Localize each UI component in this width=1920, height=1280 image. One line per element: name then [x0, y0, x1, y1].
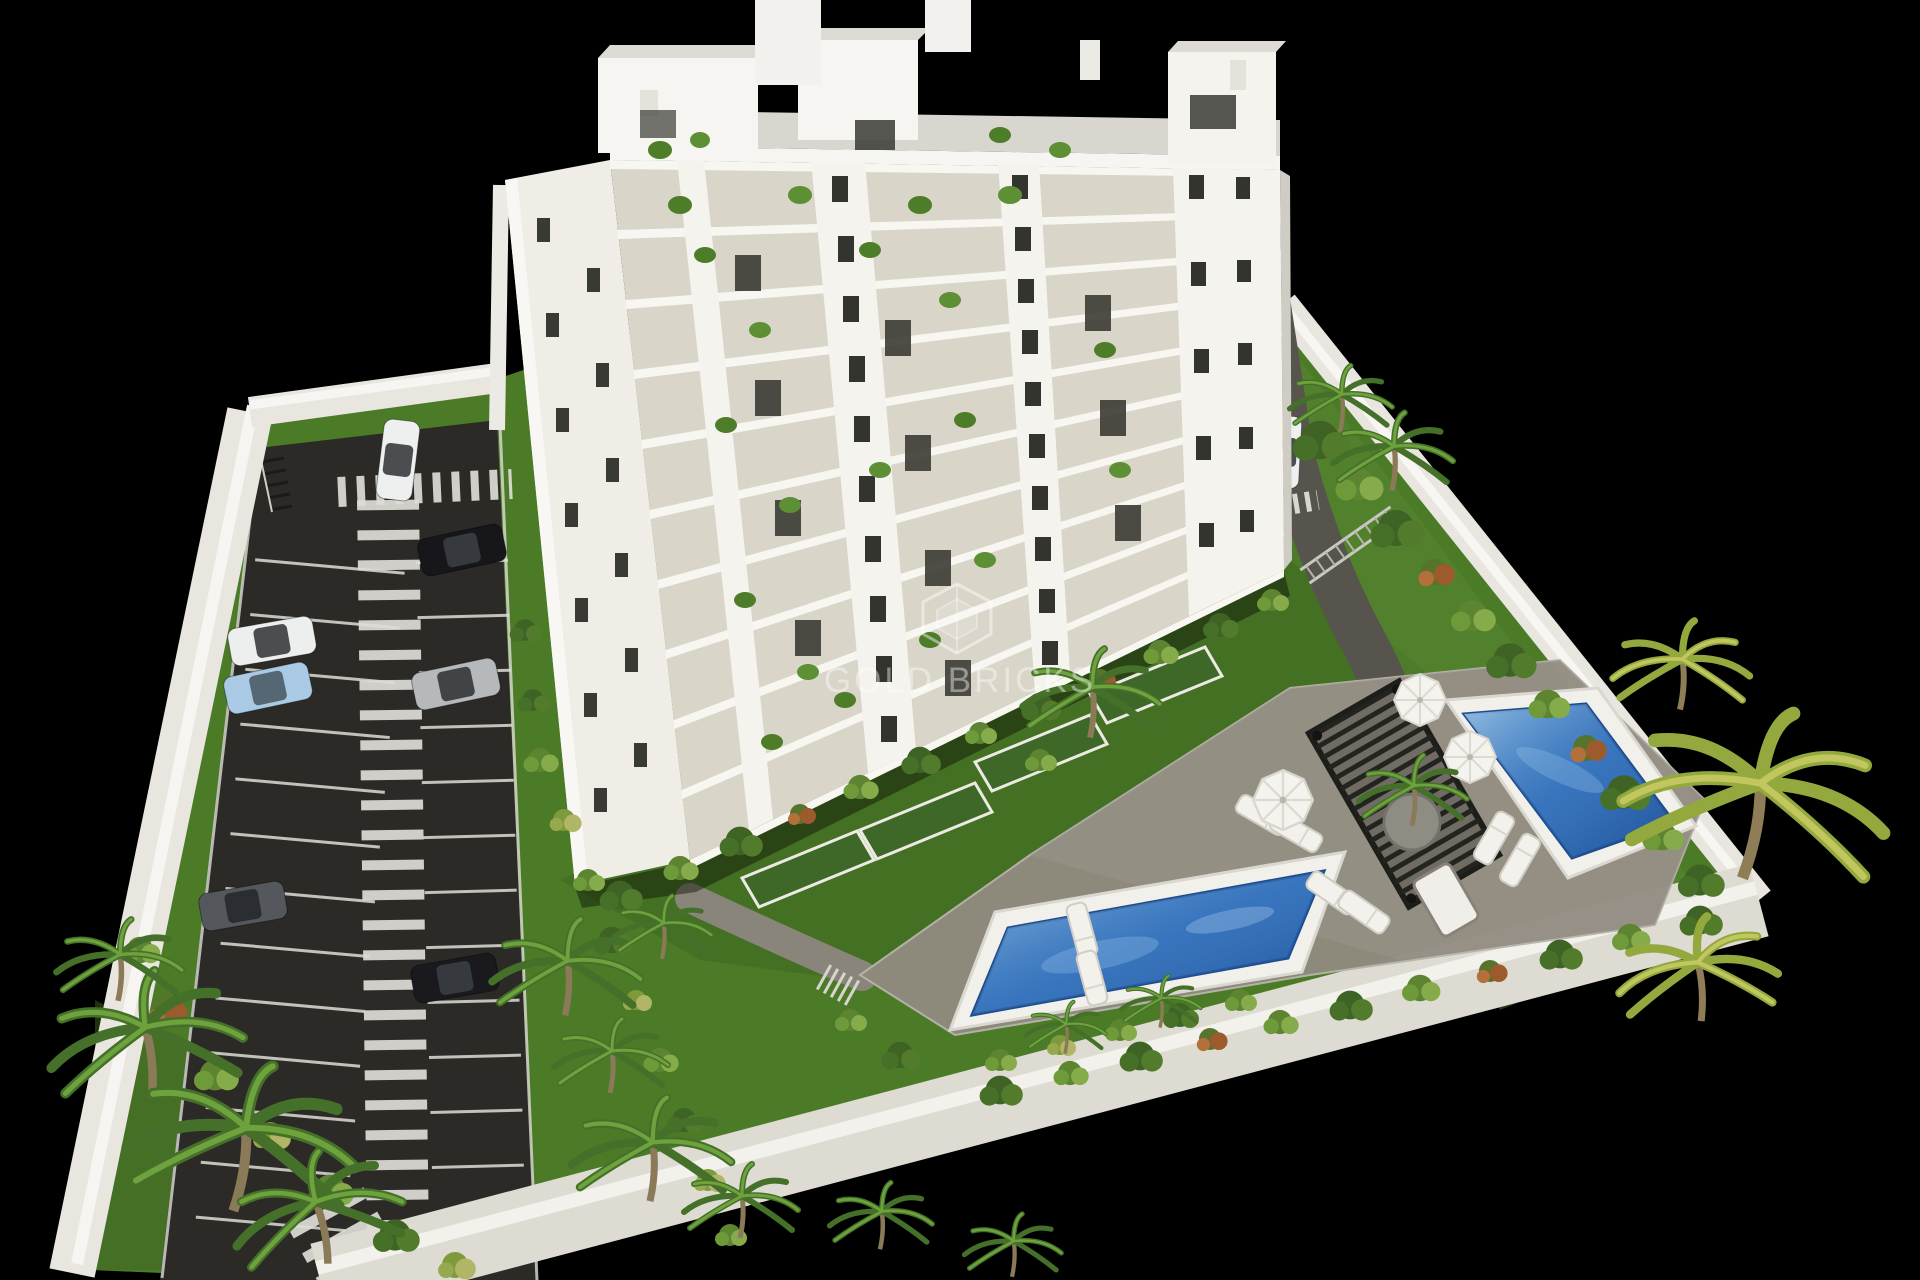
window	[625, 648, 638, 672]
window	[859, 476, 875, 502]
window	[1029, 434, 1045, 458]
window	[1022, 330, 1038, 354]
window	[843, 296, 859, 322]
window	[1018, 279, 1034, 303]
parasol	[1253, 770, 1313, 830]
window	[634, 743, 647, 767]
window	[594, 788, 607, 812]
roof-vent	[1080, 40, 1100, 80]
window	[1191, 262, 1206, 286]
window	[1039, 589, 1055, 613]
window	[1025, 382, 1041, 406]
window	[1237, 260, 1251, 282]
window	[865, 536, 881, 562]
glass-door	[735, 255, 761, 291]
window	[870, 596, 886, 622]
window	[849, 356, 865, 382]
window	[1238, 343, 1252, 365]
window	[546, 313, 559, 337]
facade-pier	[1173, 168, 1284, 616]
window	[575, 598, 588, 622]
penthouse-glazing	[640, 110, 676, 138]
window	[1240, 510, 1254, 532]
window	[584, 693, 597, 717]
glass-door	[1085, 295, 1111, 331]
side-wall-sliver	[497, 185, 501, 430]
window	[587, 268, 600, 292]
glass-door	[755, 380, 781, 416]
window	[1032, 486, 1048, 510]
penthouse-roof	[1168, 41, 1286, 52]
window	[1199, 523, 1214, 547]
watermark-brand-text: GOLD BRICKS	[824, 661, 1096, 700]
aerial-render: GOLD BRICKS	[0, 0, 1920, 1280]
glass-door	[1115, 505, 1141, 541]
window	[1239, 427, 1253, 449]
chimney	[925, 0, 971, 52]
window	[596, 363, 609, 387]
glass-door	[905, 435, 931, 471]
parasol	[1444, 731, 1496, 783]
penthouse-glazing	[855, 120, 895, 150]
window	[832, 176, 848, 202]
glass-door	[795, 620, 821, 656]
window	[606, 458, 619, 482]
glass-door	[885, 320, 911, 356]
window	[537, 218, 550, 242]
roof-vent	[1230, 60, 1246, 90]
penthouse-glazing	[1190, 95, 1236, 129]
window	[838, 236, 854, 262]
window	[1189, 175, 1204, 199]
glass-door	[1100, 400, 1126, 436]
window	[1035, 537, 1051, 561]
chimney	[755, 0, 821, 85]
window	[565, 503, 578, 527]
window	[1194, 349, 1209, 373]
glass-door	[925, 550, 951, 586]
penthouse-roof	[598, 45, 770, 58]
window	[881, 716, 897, 742]
window	[854, 416, 870, 442]
parasol	[1394, 674, 1446, 726]
penthouse-volume	[598, 58, 758, 153]
window	[1196, 436, 1211, 460]
window	[556, 408, 569, 432]
window	[615, 553, 628, 577]
window	[1236, 177, 1250, 199]
render-canvas: GOLD BRICKS	[0, 0, 1920, 1280]
window	[1015, 227, 1031, 251]
